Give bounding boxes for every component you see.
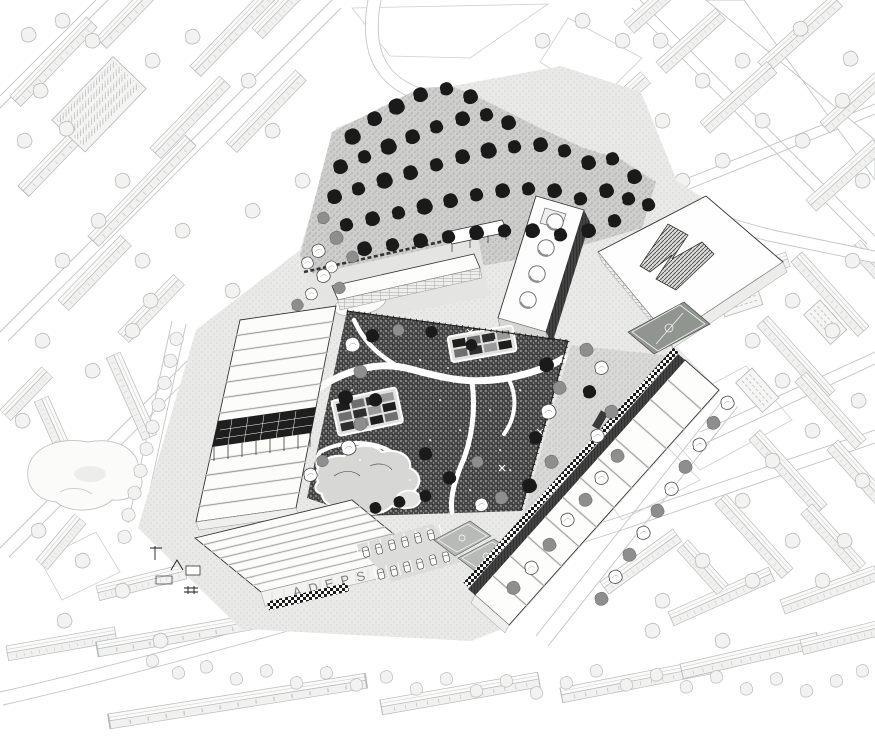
tree xyxy=(561,513,574,526)
garden-tree xyxy=(200,661,213,674)
flower-speck xyxy=(369,429,371,431)
context-tree xyxy=(225,283,240,298)
flower-speck xyxy=(519,389,521,391)
context-tree xyxy=(805,423,820,438)
context-tree xyxy=(143,293,158,308)
context-tree xyxy=(793,21,808,36)
garden-tree xyxy=(146,655,159,668)
flower-speck xyxy=(359,459,361,461)
street-tree xyxy=(128,486,141,499)
masterplan-drawing: ADEPS xyxy=(0,0,875,747)
tree xyxy=(334,282,346,294)
street-tree xyxy=(118,530,131,543)
context-tree xyxy=(795,133,810,148)
context-tree xyxy=(85,363,100,378)
street-tree xyxy=(140,442,153,455)
tree xyxy=(595,471,608,484)
tree xyxy=(306,288,318,300)
street-tree xyxy=(623,548,636,561)
tree xyxy=(495,491,508,504)
garden-tree xyxy=(470,685,483,698)
context-pond-park xyxy=(28,440,142,510)
garden-tree xyxy=(680,681,693,694)
street-tree xyxy=(122,508,135,521)
context-tree xyxy=(265,123,280,138)
street-tree xyxy=(595,592,608,605)
flower-speck xyxy=(509,469,511,471)
tree xyxy=(525,561,538,574)
street-tree xyxy=(651,504,664,517)
garden-tree xyxy=(590,665,603,678)
context-tree xyxy=(85,33,100,48)
flower-speck xyxy=(499,449,501,451)
context-tree xyxy=(153,633,168,648)
garden-tree xyxy=(800,685,813,698)
context-tree xyxy=(835,93,850,108)
tree xyxy=(292,299,304,311)
tree xyxy=(304,468,317,481)
tree-gray xyxy=(330,231,343,244)
tree xyxy=(472,456,484,468)
garden-tree xyxy=(440,673,453,686)
tree-light xyxy=(312,244,325,257)
context-tree xyxy=(91,213,106,228)
context-tree xyxy=(695,553,710,568)
tree xyxy=(595,361,608,374)
garden-tree xyxy=(830,675,843,688)
garden-tree xyxy=(740,683,753,696)
street-tree xyxy=(146,420,159,433)
tree xyxy=(317,455,329,467)
context-tree xyxy=(843,51,858,66)
context-tree xyxy=(755,113,770,128)
context-tree xyxy=(575,13,590,28)
tree xyxy=(354,365,367,378)
context-tree xyxy=(645,623,660,638)
context-tree xyxy=(21,27,36,42)
flower-speck xyxy=(429,439,431,441)
street-tree xyxy=(721,396,734,409)
flower-speck xyxy=(459,429,461,431)
flower-speck xyxy=(479,359,481,361)
context-tree xyxy=(845,253,860,268)
context-tree xyxy=(75,553,90,568)
context-tree xyxy=(745,333,760,348)
context-tree xyxy=(31,523,46,538)
garden-tree xyxy=(350,679,363,692)
tree-gray xyxy=(347,251,359,263)
street-tree xyxy=(693,438,706,451)
context-tree xyxy=(815,573,830,588)
context-tree xyxy=(715,153,730,168)
tree xyxy=(393,324,405,336)
context-tree xyxy=(295,173,310,188)
street-tree xyxy=(609,570,622,583)
garden-tree xyxy=(172,667,185,680)
context-tree xyxy=(695,73,710,88)
context-tree xyxy=(855,473,870,488)
flower-speck xyxy=(409,479,411,481)
context-tree xyxy=(59,121,74,136)
context-tree xyxy=(115,583,130,598)
garden-tree xyxy=(530,687,543,700)
street-tree xyxy=(164,354,177,367)
garden-tree xyxy=(380,671,393,684)
garden-tree xyxy=(620,679,633,692)
context-tree xyxy=(775,373,790,388)
flower-speck xyxy=(447,367,449,369)
context-tree xyxy=(615,33,630,48)
context-tree xyxy=(57,613,72,628)
street-tree xyxy=(707,416,720,429)
garden-tree xyxy=(650,669,663,682)
context-tree xyxy=(715,633,730,648)
garden-tree xyxy=(500,675,513,688)
flower-speck xyxy=(439,399,441,401)
tree-gray xyxy=(318,212,330,224)
context-tree xyxy=(125,323,140,338)
street-tree xyxy=(665,482,678,495)
context-tree xyxy=(765,453,780,468)
street-tree xyxy=(679,460,692,473)
tree xyxy=(354,417,367,430)
context-tree xyxy=(55,13,70,28)
street-tree xyxy=(158,376,171,389)
garden-tree xyxy=(260,665,273,678)
context-tree xyxy=(785,293,800,308)
context-tree xyxy=(15,413,30,428)
context-tree xyxy=(837,533,852,548)
tree xyxy=(317,269,330,282)
context-tree xyxy=(655,113,670,128)
tree-light xyxy=(302,257,314,269)
street-tree xyxy=(152,398,165,411)
context-tree xyxy=(17,133,32,148)
tree xyxy=(591,429,604,442)
tree xyxy=(553,381,566,394)
context-tree xyxy=(115,173,130,188)
context-tree xyxy=(745,573,760,588)
tree xyxy=(605,405,618,418)
garden-tree xyxy=(320,667,333,680)
tree xyxy=(545,455,558,468)
context-tree xyxy=(175,223,190,238)
context-tree xyxy=(535,33,550,48)
context-tree xyxy=(185,29,200,44)
context-tree xyxy=(653,33,668,48)
tree xyxy=(543,538,556,551)
masterplan-svg: ADEPS xyxy=(0,0,875,747)
context-tree xyxy=(145,53,160,68)
tree xyxy=(580,343,593,356)
tree xyxy=(541,404,556,419)
garden-tree xyxy=(410,683,423,696)
garden-tree xyxy=(770,673,783,686)
context-tree xyxy=(851,393,866,408)
tree xyxy=(341,440,356,455)
context-tree xyxy=(655,593,670,608)
tree xyxy=(507,581,520,594)
flower-speck xyxy=(399,419,401,421)
flower-speck xyxy=(489,409,491,411)
garden-tree xyxy=(230,673,243,686)
context-tree xyxy=(855,173,870,188)
flower-speck xyxy=(494,339,496,341)
context-tree xyxy=(735,53,750,68)
garden-tree xyxy=(560,677,573,690)
garden-tree xyxy=(856,665,869,678)
street-tree xyxy=(134,464,147,477)
flower-speck xyxy=(389,469,391,471)
flower-speck xyxy=(351,389,353,391)
context-tree xyxy=(35,333,50,348)
context-tree xyxy=(135,253,150,268)
context-tree xyxy=(785,533,800,548)
context-tree xyxy=(735,493,750,508)
tree xyxy=(345,337,360,352)
garden-tree xyxy=(290,677,303,690)
street-tree xyxy=(170,332,183,345)
flower-speck xyxy=(449,349,451,351)
context-tree xyxy=(825,323,840,338)
flower-speck xyxy=(419,359,421,361)
context-tree xyxy=(55,253,70,268)
garden-tree xyxy=(710,671,723,684)
street-tree xyxy=(637,526,650,539)
context-tree xyxy=(33,83,48,98)
flower-speck xyxy=(469,489,471,491)
context-tree xyxy=(241,73,256,88)
tree xyxy=(579,493,592,506)
context-tree xyxy=(245,203,260,218)
tree xyxy=(611,449,624,462)
tree xyxy=(475,498,488,511)
